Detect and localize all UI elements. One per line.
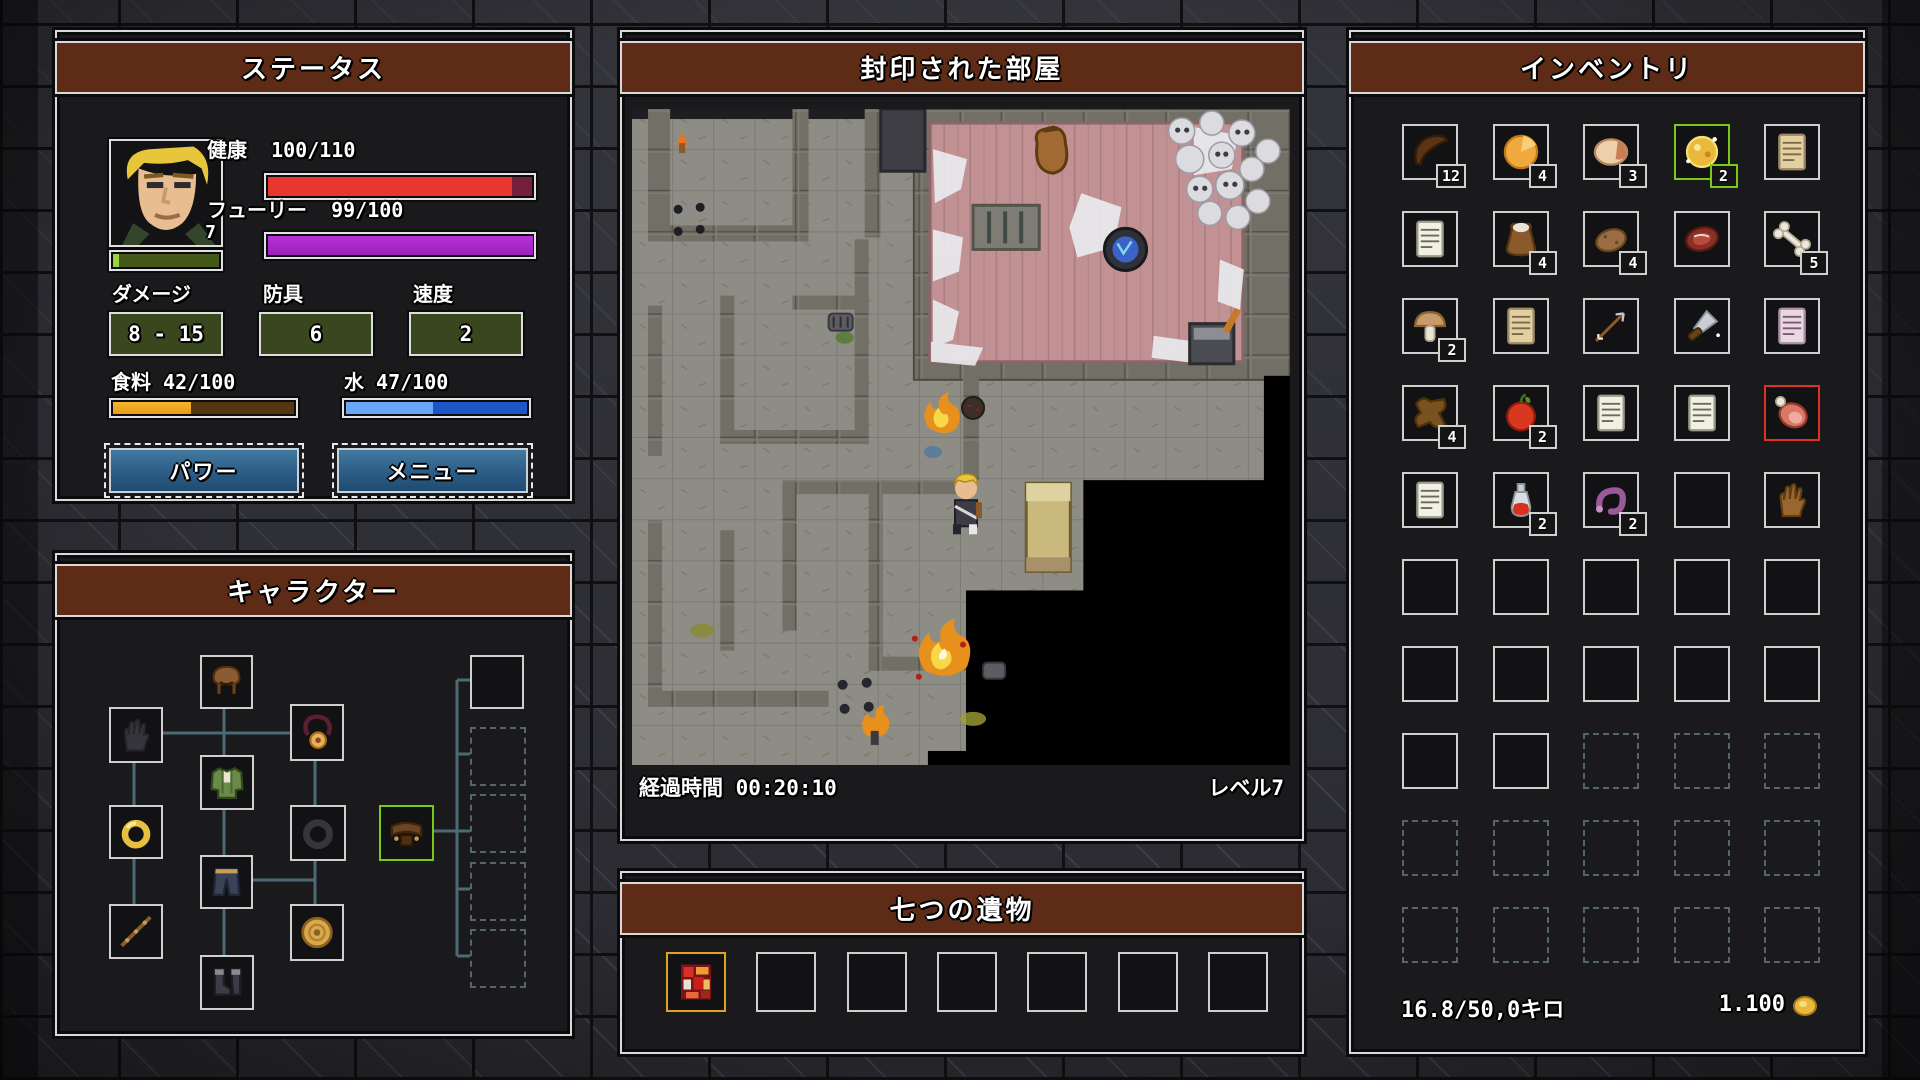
arrow-icon (1588, 303, 1634, 349)
inventory-slot-empty[interactable] (1764, 733, 1820, 789)
speed-value: 2 (460, 322, 473, 346)
inventory-slot-empty[interactable] (1583, 559, 1639, 615)
inventory-slot-scroll-white[interactable] (1583, 385, 1639, 441)
inventory-slot-empty[interactable] (1493, 646, 1549, 702)
food-label: 食料 42/100 (111, 366, 235, 395)
inventory-slot-empty[interactable] (1402, 907, 1458, 963)
inventory-slot-empty[interactable] (1674, 646, 1730, 702)
speed-label: 速度 (413, 278, 453, 307)
inventory-slot-empty[interactable] (1402, 820, 1458, 876)
power-button[interactable]: パワー (109, 448, 299, 493)
damage-label: ダメージ (112, 278, 191, 307)
item-count-badge: 12 (1436, 164, 1466, 188)
weight-indicator: 16.8/50,0キロ (1401, 992, 1564, 1024)
pants-icon (205, 860, 248, 904)
relic-panel: 七つの遺物 (620, 871, 1304, 1054)
gold-coin-icon (1793, 996, 1817, 1016)
inventory-slot-arrow[interactable] (1583, 298, 1639, 354)
menu-button-label: メニュー (387, 456, 479, 486)
speed-value-box: 2 (409, 312, 523, 356)
relic-slot-3[interactable] (847, 952, 907, 1012)
pants-slot[interactable] (200, 855, 253, 909)
inventory-slot-goldfood[interactable]: 2 (1674, 124, 1730, 180)
inventory-slot-empty[interactable] (1764, 907, 1820, 963)
fury-bar (264, 232, 536, 259)
inventory-slot-empty[interactable] (1583, 820, 1639, 876)
inventory-slot-jerky[interactable]: 12 (1402, 124, 1458, 180)
inventory-slot-empty[interactable] (1493, 733, 1549, 789)
inventory-slot-potato[interactable]: 4 (1583, 211, 1639, 267)
shield-icon (295, 909, 339, 956)
relic-icon (671, 957, 721, 1007)
inventory-slot-bread[interactable]: 3 (1583, 124, 1639, 180)
inventory-slot-empty[interactable] (1764, 820, 1820, 876)
damage-value-box: 8 - 15 (109, 312, 223, 356)
damage-value: 8 - 15 (128, 322, 204, 346)
elapsed-time: 経過時間 00:20:10 (639, 772, 837, 802)
inventory-slot-ham[interactable] (1764, 385, 1820, 441)
inventory-slot-apple[interactable]: 2 (1493, 385, 1549, 441)
tunic-icon (205, 760, 249, 805)
gold-amount: 1.100 (1719, 992, 1785, 1017)
item-count-badge: 4 (1438, 425, 1466, 449)
relic-panel-title: 七つの遺物 (620, 882, 1304, 935)
inventory-slot-saltbag[interactable]: 4 (1493, 211, 1549, 267)
gloves-slot[interactable] (109, 707, 163, 763)
inventory-slot-scroll-tan[interactable] (1493, 298, 1549, 354)
inventory-slot-empty[interactable] (1764, 559, 1820, 615)
item-count-badge: 2 (1619, 512, 1647, 536)
inventory-slot-scroll-white[interactable] (1402, 472, 1458, 528)
belt-slot[interactable] (379, 805, 434, 861)
scroll-pink-icon (1769, 303, 1815, 349)
food-bar (109, 398, 298, 418)
relic-title-text: 七つの遺物 (889, 890, 1034, 927)
steak-icon (1679, 216, 1725, 262)
inventory-slot-bone[interactable]: 5 (1764, 211, 1820, 267)
inventory-slot-scroll-white[interactable] (1402, 211, 1458, 267)
inventory-title-text: インベントリ (1520, 49, 1694, 86)
item-count-badge: 2 (1710, 164, 1738, 188)
glove-icon (1769, 477, 1815, 523)
relic-slot-2[interactable] (756, 952, 816, 1012)
inventory-slot-empty[interactable] (1493, 907, 1549, 963)
dagger-icon (1679, 303, 1725, 349)
extra-slot-3[interactable] (470, 794, 526, 853)
armor-value: 6 (310, 322, 323, 346)
status-panel: ステータス 7 健康 100/110 フューリー 99/100 (55, 30, 572, 501)
inventory-slot-empty[interactable] (1674, 820, 1730, 876)
inventory-slot-empty[interactable] (1674, 733, 1730, 789)
inventory-slot-cheese[interactable]: 4 (1493, 124, 1549, 180)
extra-slot-4[interactable] (470, 862, 526, 921)
inventory-slot-scroll-tan[interactable] (1764, 124, 1820, 180)
inventory-slot-empty[interactable] (1764, 646, 1820, 702)
map-panel: 封印された部屋 (620, 30, 1304, 841)
player-sprite (953, 474, 982, 534)
water-label: 水 47/100 (344, 366, 448, 395)
inventory-slot-empty[interactable] (1674, 559, 1730, 615)
item-count-badge: 4 (1619, 251, 1647, 275)
portrait-level: 7 (205, 222, 216, 243)
relic-slot-5[interactable] (1027, 952, 1087, 1012)
inventory-slot-empty[interactable] (1583, 646, 1639, 702)
hood-slot[interactable] (200, 655, 253, 709)
inventory-slot-empty[interactable] (1674, 907, 1730, 963)
inventory-slot-mushroom[interactable]: 2 (1402, 298, 1458, 354)
scroll-tan-icon (1769, 129, 1815, 175)
status-panel-title: ステータス (55, 41, 572, 94)
inventory-slot-empty[interactable] (1493, 559, 1549, 615)
boots-slot[interactable] (200, 955, 254, 1010)
scroll-white-icon (1588, 390, 1634, 436)
inventory-slot-scroll-pink[interactable] (1764, 298, 1820, 354)
dungeon-level: レベル7 (1208, 772, 1284, 802)
inventory-slot-steak[interactable] (1674, 211, 1730, 267)
relic-slot-1[interactable] (666, 952, 726, 1012)
inventory-panel-title: インベントリ (1349, 41, 1865, 94)
fury-label: フューリー 99/100 (207, 194, 403, 223)
character-portrait: 7 (109, 139, 223, 247)
extra-slot-2[interactable] (470, 727, 526, 786)
game-screen: ステータス 7 健康 100/110 フューリー 99/100 (0, 0, 1920, 1080)
staff-icon (114, 909, 158, 954)
power-button-label: パワー (170, 456, 239, 486)
character-panel: キャラクター (55, 553, 572, 1036)
item-count-badge: 2 (1438, 338, 1466, 362)
extra-slot-5[interactable] (470, 929, 526, 988)
weapon-slot[interactable] (109, 904, 163, 959)
extra-slot-1[interactable] (470, 655, 524, 709)
scroll-white-icon (1407, 477, 1453, 523)
item-count-badge: 2 (1529, 425, 1557, 449)
item-count-badge: 4 (1529, 251, 1557, 275)
inventory-slot-glove[interactable] (1764, 472, 1820, 528)
glove-empty-icon (114, 712, 158, 758)
inventory-slot-empty[interactable] (1493, 820, 1549, 876)
blue-seal (1104, 228, 1146, 270)
ring-gold-icon (114, 810, 158, 854)
map-title-text: 封印された部屋 (860, 49, 1063, 86)
water-bar (342, 398, 531, 418)
armor-label: 防具 (263, 278, 303, 307)
amulet-slot[interactable] (290, 704, 344, 761)
item-count-badge: 3 (1619, 164, 1647, 188)
menu-button[interactable]: メニュー (337, 448, 528, 493)
ham-icon (1769, 390, 1815, 436)
scroll-tan-icon (1498, 303, 1544, 349)
item-count-badge: 2 (1529, 512, 1557, 536)
inventory-slot-empty[interactable] (1583, 733, 1639, 789)
ring-left-slot[interactable] (109, 805, 163, 859)
inventory-slot-empty[interactable] (1402, 646, 1458, 702)
map-viewport[interactable] (632, 109, 1290, 765)
loot-sack (1036, 127, 1067, 173)
inventory-slot-empty[interactable] (1402, 559, 1458, 615)
relic-slot-6[interactable] (1118, 952, 1178, 1012)
bed (1026, 483, 1070, 571)
inventory-slot-empty[interactable] (1674, 472, 1730, 528)
inventory-slot-hide[interactable]: 4 (1402, 385, 1458, 441)
status-title-text: ステータス (241, 49, 386, 86)
hood-icon (205, 660, 248, 704)
xp-bar (109, 250, 223, 271)
map-panel-title: 封印された部屋 (620, 41, 1304, 94)
boots-icon (205, 960, 249, 1005)
inventory-slot-empty[interactable] (1402, 733, 1458, 789)
inventory-slot-dagger[interactable] (1674, 298, 1730, 354)
shield-slot[interactable] (290, 904, 344, 961)
inventory-slot-worm[interactable]: 2 (1583, 472, 1639, 528)
ring-right-slot[interactable] (290, 805, 346, 861)
inventory-slot-empty[interactable] (1583, 907, 1639, 963)
inventory-panel: インベントリ 1243244524222 16.8/50,0キロ 1.100 (1349, 30, 1865, 1054)
scroll-white-icon (1407, 216, 1453, 262)
dungeon-map-art (632, 109, 1290, 765)
ring-empty-icon (295, 810, 341, 856)
item-count-badge: 5 (1800, 251, 1828, 275)
amulet-icon (295, 709, 339, 756)
inventory-slot-potion[interactable]: 2 (1493, 472, 1549, 528)
relic-slot-4[interactable] (937, 952, 997, 1012)
scroll-white-icon (1679, 390, 1725, 436)
inventory-slot-scroll-white[interactable] (1674, 385, 1730, 441)
relic-slot-7[interactable] (1208, 952, 1268, 1012)
belt-icon (384, 810, 429, 856)
armor-slot[interactable] (200, 755, 254, 810)
item-count-badge: 4 (1529, 164, 1557, 188)
armor-value-box: 6 (259, 312, 373, 356)
health-label: 健康 100/110 (207, 134, 355, 163)
